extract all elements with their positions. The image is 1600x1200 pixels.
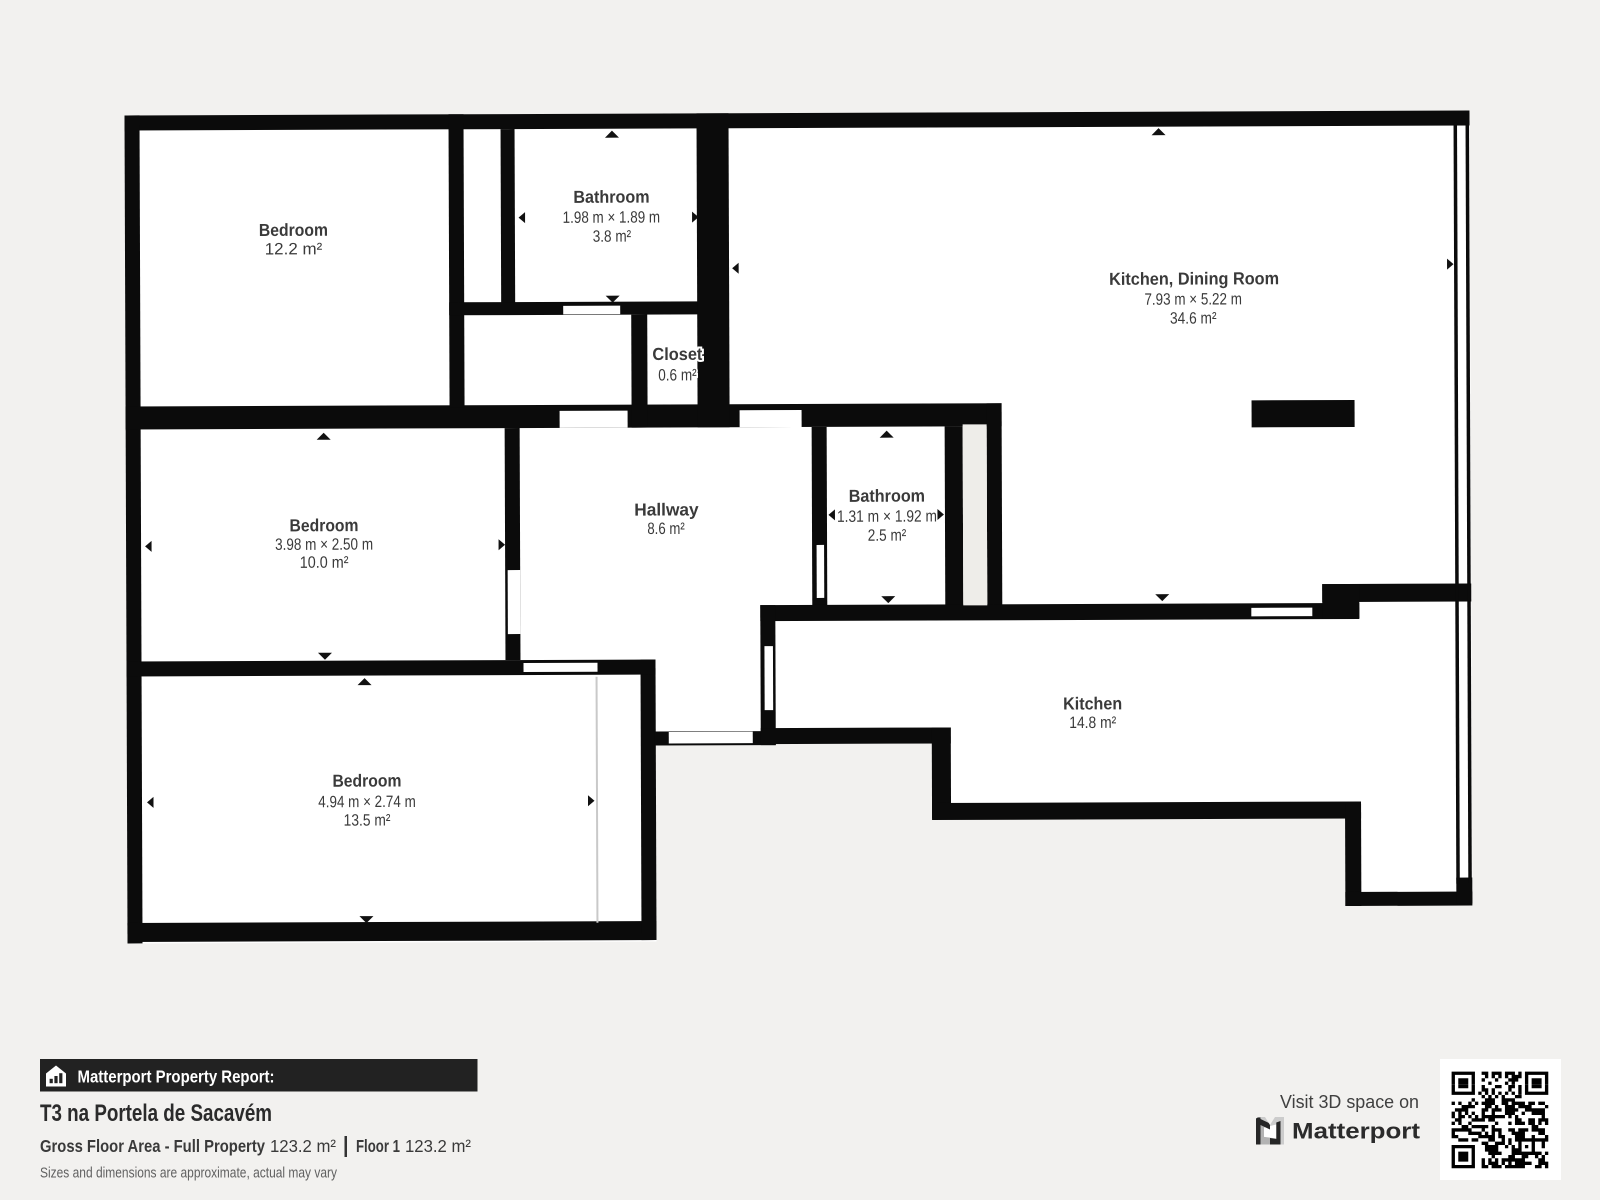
svg-text:Closet: Closet <box>652 344 702 364</box>
svg-text:123.2 m²: 123.2 m² <box>270 1136 336 1156</box>
svg-text:34.6 m²: 34.6 m² <box>1170 309 1217 327</box>
svg-text:T3 na Portela de Sacavém: T3 na Portela de Sacavém <box>40 1100 272 1127</box>
svg-text:Sizes and dimensions are appro: Sizes and dimensions are approximate, ac… <box>40 1166 338 1182</box>
svg-text:13.5 m²: 13.5 m² <box>344 812 391 830</box>
svg-text:Bedroom: Bedroom <box>259 220 328 240</box>
svg-text:14.8 m²: 14.8 m² <box>1069 714 1116 732</box>
svg-text:12.2 m²: 12.2 m² <box>265 240 323 258</box>
svg-text:Bathroom: Bathroom <box>573 187 649 207</box>
svg-text:4.94 m × 2.74 m: 4.94 m × 2.74 m <box>318 793 416 811</box>
svg-text:1.31 m × 1.92 m: 1.31 m × 1.92 m <box>837 507 937 525</box>
svg-text:8.6 m²: 8.6 m² <box>647 520 685 538</box>
svg-text:1.98 m × 1.89 m: 1.98 m × 1.89 m <box>563 209 661 227</box>
svg-text:Visit 3D space on: Visit 3D space on <box>1280 1092 1419 1112</box>
svg-text:Matterport Property Report:: Matterport Property Report: <box>78 1067 275 1087</box>
svg-text:Gross Floor Area - Full Proper: Gross Floor Area - Full Property <box>40 1136 265 1156</box>
svg-text:Floor 1: Floor 1 <box>356 1136 400 1156</box>
svg-text:3.8 m²: 3.8 m² <box>593 228 632 246</box>
svg-text:Bedroom: Bedroom <box>289 515 358 535</box>
svg-text:Bedroom: Bedroom <box>332 770 401 790</box>
svg-text:2.5 m²: 2.5 m² <box>868 527 907 545</box>
svg-text:Hallway: Hallway <box>634 499 699 519</box>
svg-text:10.0 m²: 10.0 m² <box>300 554 349 572</box>
svg-text:Bathroom: Bathroom <box>849 486 925 506</box>
svg-text:7.93 m × 5.22 m: 7.93 m × 5.22 m <box>1144 290 1242 308</box>
svg-text:3.98 m × 2.50 m: 3.98 m × 2.50 m <box>275 536 373 554</box>
svg-text:Kitchen: Kitchen <box>1063 693 1122 713</box>
svg-text:Matterport: Matterport <box>1292 1119 1421 1144</box>
svg-text:Kitchen, Dining Room: Kitchen, Dining Room <box>1109 268 1279 289</box>
svg-text:0.6 m²: 0.6 m² <box>658 366 697 384</box>
svg-text:123.2 m²: 123.2 m² <box>405 1136 471 1156</box>
